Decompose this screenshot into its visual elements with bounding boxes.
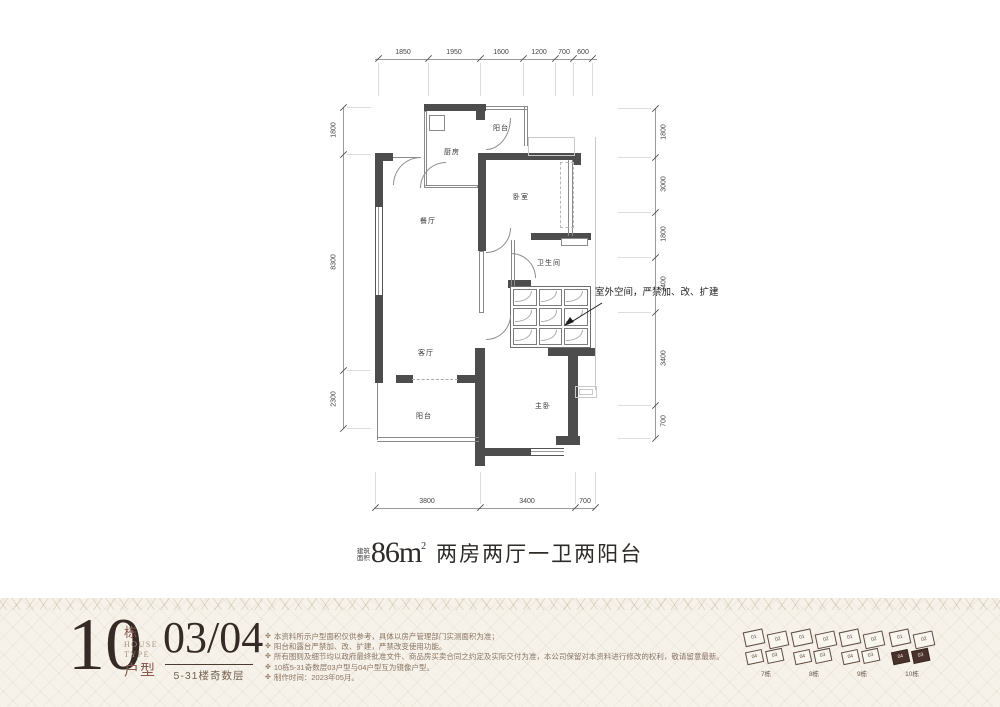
dim-label: 2400 bbox=[661, 276, 668, 292]
unit-title: 建筑面积 86m 2 两房两厅一卫两阳台 bbox=[0, 540, 1000, 566]
wall bbox=[375, 295, 383, 383]
note-line: ✤本资料所示户型面积仅供参考，具体以房产管理部门实测面积为准； bbox=[265, 632, 655, 642]
keyplan-units: 01 02 03 04 bbox=[883, 621, 940, 671]
units-underline bbox=[165, 664, 253, 665]
area-superscript: 2 bbox=[421, 542, 426, 552]
grid-cell bbox=[513, 328, 537, 345]
clover-bullet-icon: ✤ bbox=[265, 673, 271, 683]
balcony-rail bbox=[486, 106, 528, 107]
room-label-bedroom: 卧室 bbox=[513, 192, 529, 202]
room-label-balcony-bottom: 阳台 bbox=[416, 411, 432, 421]
dim-label: 1600 bbox=[493, 49, 509, 56]
balcony-rail bbox=[524, 106, 525, 146]
outline-light bbox=[595, 137, 596, 390]
balcony-rail bbox=[486, 109, 528, 110]
wall bbox=[478, 153, 486, 251]
dim-label: 3800 bbox=[419, 498, 435, 505]
dim-label: 1800 bbox=[661, 226, 668, 242]
room-label-master: 主卧 bbox=[535, 401, 551, 411]
annotation-arrow bbox=[556, 295, 616, 333]
dim-label: 1800 bbox=[661, 124, 668, 140]
floors-range: 5-31楼奇数层 bbox=[157, 668, 261, 683]
unit-numbers-title: 03/04 bbox=[163, 612, 255, 664]
flue-shaft bbox=[476, 111, 485, 120]
area-prefix: 建筑面积 bbox=[357, 548, 370, 562]
dim-label: 600 bbox=[577, 49, 589, 56]
window bbox=[531, 448, 564, 456]
balcony-rail bbox=[377, 441, 479, 442]
wall bbox=[424, 104, 486, 111]
dim-label: 700 bbox=[661, 415, 668, 427]
keyplan-block-10-active: 01 02 03 04 10栋 bbox=[887, 626, 937, 678]
door-arc bbox=[486, 228, 511, 253]
wall bbox=[396, 375, 413, 383]
dim-label: 3400 bbox=[661, 350, 668, 366]
wall bbox=[485, 448, 531, 456]
floor-plan: 厨房 阳台 卧室 餐厅 卫生间 客厅 阳台 主卧 bbox=[368, 88, 638, 478]
keyplan-units: 01 02 03 04 bbox=[737, 621, 794, 671]
note-line: ✤制作时间：2023年05月。 bbox=[265, 673, 655, 683]
dim-label: 3000 bbox=[661, 176, 668, 192]
keyplan-units: 01 02 03 04 bbox=[785, 621, 842, 671]
grid-cell bbox=[513, 308, 537, 325]
kitchen-counter bbox=[429, 115, 445, 131]
dim-label: 8300 bbox=[331, 254, 338, 270]
wall bbox=[475, 348, 485, 455]
balcony-rail bbox=[377, 437, 479, 438]
keyplan-units: 01 02 03 04 bbox=[833, 621, 890, 671]
room-label-balcony-top: 阳台 bbox=[493, 123, 509, 133]
active-unit-04: 04 bbox=[891, 649, 910, 665]
bath-window bbox=[561, 238, 588, 246]
disclaimer-notes: ✤本资料所示户型面积仅供参考，具体以房产管理部门实测面积为准； ✤阳台和露台严禁… bbox=[265, 632, 655, 683]
area-value: 86m bbox=[371, 540, 421, 566]
exterior-step bbox=[579, 389, 593, 395]
zigzag-pattern bbox=[0, 598, 1000, 610]
dim-label: 1800 bbox=[331, 122, 338, 138]
wall bbox=[457, 375, 483, 383]
wall-thin bbox=[479, 251, 484, 313]
wall bbox=[556, 436, 580, 445]
note-line: ✤所有图则及细节均以政府最终批准文件、商品房买卖合同之约定及实际交付为准，本公司… bbox=[265, 652, 655, 662]
door-arc bbox=[393, 157, 421, 185]
dim-label: 1950 bbox=[446, 49, 462, 56]
unit-description: 两房两厅一卫两阳台 bbox=[436, 542, 643, 566]
door-arc bbox=[511, 253, 536, 278]
dim-label: 700 bbox=[558, 49, 570, 56]
dim-label: 1200 bbox=[531, 49, 547, 56]
room-label-kitchen: 厨房 bbox=[444, 147, 460, 157]
sliding-door bbox=[412, 379, 458, 380]
clover-bullet-icon: ✤ bbox=[265, 642, 271, 652]
wardrobe-dashed bbox=[560, 162, 574, 228]
dim-label: 700 bbox=[579, 498, 591, 505]
keyplan-label: 10栋 bbox=[879, 668, 945, 678]
note-line: ✤阳台和露台严禁加、改、扩建，严禁改变使用功能。 bbox=[265, 642, 655, 652]
room-label-bathroom: 卫生间 bbox=[537, 258, 561, 268]
room-label-living: 客厅 bbox=[418, 348, 434, 358]
clover-bullet-icon: ✤ bbox=[265, 632, 271, 642]
grid-cell bbox=[513, 289, 537, 306]
balcony-rail bbox=[377, 383, 378, 440]
note-line: ✤10栋5-31奇数层03户型与04户型互为镜像户型。 bbox=[265, 663, 655, 673]
wall bbox=[375, 153, 383, 208]
window bbox=[375, 207, 383, 295]
wall bbox=[475, 448, 485, 466]
door-arc bbox=[486, 315, 511, 340]
clover-bullet-icon: ✤ bbox=[265, 652, 271, 662]
room-label-dining: 餐厅 bbox=[420, 216, 436, 226]
floorplan-page: 厨房 阳台 卧室 餐厅 卫生间 客厅 阳台 主卧 室外空间，严禁加、改、扩建 1… bbox=[0, 0, 1000, 707]
outline-light bbox=[528, 137, 575, 156]
clover-bullet-icon: ✤ bbox=[265, 663, 271, 673]
dim-label: 1850 bbox=[395, 49, 411, 56]
dim-label: 3400 bbox=[519, 498, 535, 505]
dim-label: 2300 bbox=[331, 391, 338, 407]
active-unit-03: 03 bbox=[911, 648, 930, 664]
